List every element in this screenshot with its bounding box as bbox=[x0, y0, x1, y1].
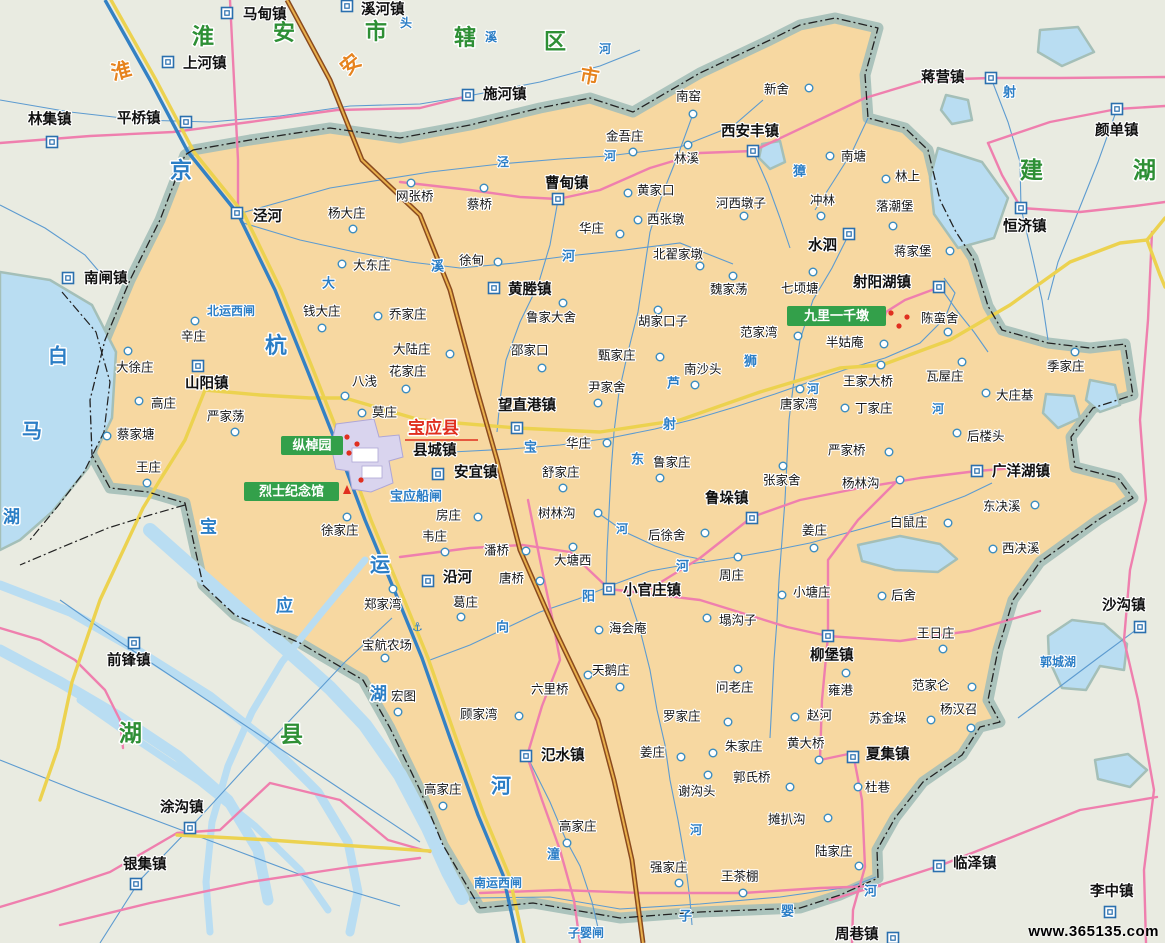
village-label: 蔡桥 bbox=[467, 197, 493, 211]
village-label: 潘桥 bbox=[484, 543, 510, 557]
village-label: 南窑 bbox=[676, 88, 701, 103]
water-label: 京 bbox=[170, 158, 192, 183]
water-label: 河 bbox=[615, 521, 628, 536]
village-symbol bbox=[569, 543, 577, 551]
village-label: 谢沟头 bbox=[678, 783, 716, 798]
village-symbol bbox=[394, 708, 402, 716]
town-symbol bbox=[1016, 203, 1027, 214]
village-label: 冲林 bbox=[810, 192, 836, 207]
village-label: 辛庄 bbox=[181, 328, 206, 343]
region-label: 湖 bbox=[1133, 157, 1156, 183]
village-symbol bbox=[689, 110, 697, 118]
village-label: 陈蛮舍 bbox=[921, 310, 959, 325]
town-label: 李中镇 bbox=[1089, 882, 1134, 900]
village-symbol bbox=[480, 184, 488, 192]
village-symbol bbox=[794, 332, 802, 340]
town-symbol bbox=[604, 584, 615, 595]
town-symbol bbox=[131, 879, 142, 890]
village-symbol bbox=[374, 312, 382, 320]
village-label: 东决溪 bbox=[983, 499, 1021, 513]
village-label: 张家舍 bbox=[763, 472, 801, 487]
village-label: 苏金垛 bbox=[869, 710, 907, 725]
village-symbol bbox=[946, 247, 954, 255]
village-symbol bbox=[603, 439, 611, 447]
village-label: 徐家庄 bbox=[321, 522, 359, 537]
town-label: 夏集镇 bbox=[866, 745, 910, 763]
village-symbol bbox=[724, 718, 732, 726]
village-label: 高家庄 bbox=[559, 818, 597, 833]
village-label: 后舍 bbox=[891, 587, 917, 602]
village-symbol bbox=[407, 179, 415, 187]
village-label: 半姑庵 bbox=[826, 334, 864, 349]
village-symbol bbox=[791, 713, 799, 721]
town-symbol bbox=[342, 1, 353, 12]
village-label: 落潮堡 bbox=[876, 198, 914, 213]
village-symbol bbox=[338, 260, 346, 268]
village-symbol bbox=[402, 385, 410, 393]
village-label: 韦庄 bbox=[422, 528, 447, 543]
village-label: 林上 bbox=[895, 169, 920, 183]
town-label: 上河镇 bbox=[183, 54, 227, 72]
town-label: 望直港镇 bbox=[498, 396, 556, 414]
town-symbol bbox=[888, 933, 899, 943]
village-label: 唐桥 bbox=[499, 570, 525, 585]
water-label: 河 bbox=[864, 883, 877, 898]
village-label: 陆家庄 bbox=[815, 843, 853, 858]
village-symbol bbox=[734, 665, 742, 673]
village-label: 徐甸 bbox=[459, 252, 484, 267]
village-label: 摊扒沟 bbox=[768, 812, 806, 826]
town-symbol bbox=[748, 146, 759, 157]
water-label: 溪 bbox=[431, 258, 445, 273]
water-label: 河 bbox=[603, 148, 616, 163]
village-label: 大陆庄 bbox=[393, 341, 431, 356]
village-symbol bbox=[796, 385, 804, 393]
village-symbol bbox=[381, 654, 389, 662]
watermark: www.365135.com bbox=[1028, 923, 1159, 940]
town-symbol bbox=[512, 423, 523, 434]
water-label: 溪 bbox=[485, 29, 498, 44]
village-symbol bbox=[594, 509, 602, 517]
village-label: 大庄基 bbox=[996, 387, 1034, 402]
scenic-dot bbox=[904, 314, 909, 319]
water-label: 郭城湖 bbox=[1040, 654, 1076, 669]
town-symbol bbox=[463, 90, 474, 101]
village-symbol bbox=[563, 839, 571, 847]
water-label: 应 bbox=[276, 595, 293, 615]
water-label: 射 bbox=[1002, 84, 1016, 99]
town-label: 柳堡镇 bbox=[810, 646, 854, 664]
village-symbol bbox=[882, 175, 890, 183]
village-label: 朱家庄 bbox=[725, 738, 763, 753]
village-label: 周庄 bbox=[719, 567, 744, 582]
village-symbol bbox=[703, 614, 711, 622]
village-label: 河西墩子 bbox=[716, 196, 766, 210]
village-symbol bbox=[1071, 348, 1079, 356]
region-label: 县 bbox=[280, 721, 303, 747]
village-label: 房庄 bbox=[436, 507, 461, 522]
town-symbol bbox=[129, 638, 140, 649]
water-label: 獐 bbox=[792, 163, 806, 178]
water-label: 东 bbox=[631, 451, 644, 466]
town-label: 小官庄镇 bbox=[623, 581, 681, 599]
village-label: 舒家庄 bbox=[542, 464, 580, 479]
village-symbol bbox=[734, 553, 742, 561]
village-symbol bbox=[896, 476, 904, 484]
village-label: 钱大庄 bbox=[303, 303, 341, 318]
water-label: 北运西闸 bbox=[207, 303, 255, 318]
county-map: ⚓头溪河泾河獐射京杭运河白马湖宝应湖大溪河宝射东芦狮河河向阳河河潼河子婴河郭城湖… bbox=[0, 0, 1165, 943]
village-symbol bbox=[677, 753, 685, 761]
water-label: 河 bbox=[806, 381, 819, 396]
village-symbol bbox=[358, 409, 366, 417]
town-symbol bbox=[1112, 104, 1123, 115]
village-symbol bbox=[341, 392, 349, 400]
village-symbol bbox=[701, 529, 709, 537]
town-symbol bbox=[972, 466, 983, 477]
village-symbol bbox=[739, 889, 747, 897]
village-label: 魏家荡 bbox=[710, 281, 748, 296]
water-label: 河 bbox=[491, 774, 511, 797]
town-label: 山阳镇 bbox=[185, 374, 229, 392]
village-label: 南沙头 bbox=[684, 361, 722, 376]
village-label: 鲁家大舍 bbox=[526, 309, 577, 324]
village-label: 范家仑 bbox=[912, 677, 950, 692]
prefecture-label: 市 bbox=[578, 63, 601, 89]
scenic-label: 九里一千墩 bbox=[803, 308, 870, 323]
region-label: 辖 bbox=[454, 25, 476, 50]
village-symbol bbox=[696, 262, 704, 270]
village-symbol bbox=[691, 381, 699, 389]
water-label: 南运西闸 bbox=[474, 875, 522, 890]
village-symbol bbox=[231, 428, 239, 436]
water-label: 宝应船闸 bbox=[390, 488, 442, 503]
scenic-label: 烈士纪念馆 bbox=[259, 483, 324, 498]
region-label: 市 bbox=[365, 19, 387, 44]
town-label: 沙沟镇 bbox=[1102, 596, 1146, 614]
scenic-dot bbox=[344, 434, 349, 439]
map-svg: ⚓头溪河泾河獐射京杭运河白马湖宝应湖大溪河宝射东芦狮河河向阳河河潼河子婴河郭城湖… bbox=[0, 0, 1165, 943]
village-symbol bbox=[389, 585, 397, 593]
village-label: 甄家庄 bbox=[598, 347, 636, 362]
scenic-dot bbox=[346, 450, 351, 455]
water-label: 河 bbox=[598, 41, 611, 56]
town-symbol bbox=[423, 576, 434, 587]
village-label: 塌沟子 bbox=[719, 613, 757, 627]
village-symbol bbox=[522, 547, 530, 555]
village-label: 七顷塘 bbox=[781, 280, 819, 295]
town-symbol bbox=[1135, 622, 1146, 633]
water-label: 婴 bbox=[781, 903, 794, 918]
village-symbol bbox=[889, 222, 897, 230]
region-label: 湖 bbox=[119, 720, 142, 746]
village-label: 八浅 bbox=[352, 374, 377, 388]
village-symbol bbox=[654, 306, 662, 314]
water-label: 湖 bbox=[3, 507, 20, 526]
village-label: 网张桥 bbox=[396, 188, 434, 203]
urban-block bbox=[352, 448, 378, 462]
town-label: 溪河镇 bbox=[361, 0, 405, 18]
water-label: 射 bbox=[662, 416, 676, 431]
village-symbol bbox=[629, 148, 637, 156]
town-label: 射阳湖镇 bbox=[852, 273, 911, 291]
town-label: 鲁垛镇 bbox=[705, 489, 749, 507]
town-label: 氾水镇 bbox=[541, 746, 585, 764]
town-label: 恒济镇 bbox=[1003, 217, 1047, 235]
village-symbol bbox=[878, 592, 886, 600]
village-label: 六里桥 bbox=[531, 682, 569, 696]
village-symbol bbox=[989, 545, 997, 553]
village-symbol bbox=[103, 432, 111, 440]
village-label: 林溪 bbox=[674, 151, 700, 165]
village-label: 黄大桥 bbox=[787, 736, 825, 750]
town-label: 银集镇 bbox=[123, 855, 167, 873]
village-label: 海会庵 bbox=[609, 620, 647, 635]
village-symbol bbox=[967, 724, 975, 732]
town-label: 曹甸镇 bbox=[545, 174, 589, 192]
village-label: 严家荡 bbox=[207, 408, 245, 423]
village-symbol bbox=[515, 712, 523, 720]
village-label: 杨大庄 bbox=[328, 205, 366, 220]
village-symbol bbox=[349, 225, 357, 233]
village-label: 大塘西 bbox=[554, 552, 592, 567]
water-label: 湖 bbox=[370, 684, 387, 703]
town-symbol bbox=[986, 73, 997, 84]
urban-block bbox=[362, 466, 382, 478]
village-label: 西张墩 bbox=[647, 211, 685, 226]
town-symbol bbox=[163, 57, 174, 68]
village-label: 问老庄 bbox=[716, 679, 754, 694]
town-symbol bbox=[848, 752, 859, 763]
village-symbol bbox=[124, 347, 132, 355]
village-symbol bbox=[779, 462, 787, 470]
village-label: 郑家湾 bbox=[364, 596, 402, 611]
village-symbol bbox=[446, 350, 454, 358]
village-label: 顾家湾 bbox=[460, 706, 498, 721]
village-label: 大徐庄 bbox=[116, 359, 154, 374]
village-label: 后楼头 bbox=[967, 428, 1005, 443]
town-label: 泾河 bbox=[253, 207, 282, 225]
village-symbol bbox=[939, 645, 947, 653]
village-label: 大东庄 bbox=[353, 257, 391, 272]
town-label: 林集镇 bbox=[28, 110, 72, 128]
village-symbol bbox=[457, 613, 465, 621]
scenic-dot bbox=[888, 310, 893, 315]
town-symbol bbox=[63, 273, 74, 284]
water-label: 河 bbox=[931, 401, 944, 416]
village-symbol bbox=[439, 802, 447, 810]
town-label: 广洋湖镇 bbox=[992, 462, 1050, 480]
village-label: 唐家湾 bbox=[780, 396, 818, 411]
town-label: 黄塍镇 bbox=[508, 280, 552, 298]
village-label: 新舍 bbox=[764, 81, 790, 96]
town-label: 马甸镇 bbox=[243, 5, 287, 23]
village-symbol bbox=[559, 484, 567, 492]
town-symbol bbox=[222, 8, 233, 19]
village-symbol bbox=[826, 152, 834, 160]
village-label: 杨林沟 bbox=[842, 475, 880, 490]
water-label: 河 bbox=[689, 822, 702, 837]
village-label: 雍港 bbox=[828, 682, 854, 697]
village-label: 丁家庄 bbox=[855, 400, 893, 415]
village-label: 白鼠庄 bbox=[890, 514, 928, 529]
village-label: 南塘 bbox=[841, 148, 866, 163]
town-label: 安宜镇 bbox=[454, 463, 498, 481]
village-symbol bbox=[1031, 501, 1039, 509]
village-label: 郭氏桥 bbox=[733, 769, 771, 784]
village-symbol bbox=[953, 429, 961, 437]
town-symbol bbox=[823, 631, 834, 642]
village-symbol bbox=[968, 683, 976, 691]
village-symbol bbox=[684, 141, 692, 149]
village-label: 强家庄 bbox=[650, 859, 688, 874]
town-symbol bbox=[934, 861, 945, 872]
town-label: 县城镇 bbox=[413, 441, 457, 459]
village-symbol bbox=[494, 258, 502, 266]
village-symbol bbox=[740, 212, 748, 220]
town-label: 前锋镇 bbox=[107, 651, 151, 669]
village-symbol bbox=[877, 361, 885, 369]
village-symbol bbox=[656, 474, 664, 482]
village-symbol bbox=[824, 814, 832, 822]
town-label: 南闸镇 bbox=[84, 269, 128, 287]
village-label: 蔡家塘 bbox=[117, 426, 155, 441]
water-label: 马 bbox=[22, 420, 42, 442]
village-symbol bbox=[809, 268, 817, 276]
village-label: 小塘庄 bbox=[793, 584, 831, 599]
village-label: 金吾庄 bbox=[606, 128, 644, 143]
region-label: 安 bbox=[273, 20, 295, 45]
village-symbol bbox=[704, 771, 712, 779]
village-label: 树林沟 bbox=[538, 505, 576, 520]
village-label: 高庄 bbox=[151, 395, 176, 410]
water-label: 阳 bbox=[582, 588, 595, 603]
region-label: 建 bbox=[1020, 157, 1043, 183]
village-label: 宝航农场 bbox=[362, 637, 412, 652]
village-label: 北翟家墩 bbox=[653, 246, 704, 261]
water-label: 大 bbox=[322, 275, 335, 290]
town-symbol bbox=[1105, 907, 1116, 918]
town-symbol bbox=[553, 194, 564, 205]
scenic-dot bbox=[354, 441, 359, 446]
town-symbol bbox=[185, 823, 196, 834]
village-label: 尹家舍 bbox=[588, 379, 626, 394]
water-label: 子婴闸 bbox=[568, 925, 604, 940]
water-label: 狮 bbox=[743, 353, 757, 368]
water-label: 白 bbox=[48, 343, 68, 367]
village-symbol bbox=[595, 626, 603, 634]
village-symbol bbox=[944, 328, 952, 336]
town-label: 西安丰镇 bbox=[721, 122, 779, 140]
village-label: 乔家庄 bbox=[389, 306, 427, 321]
village-label: 华庄 bbox=[566, 435, 591, 450]
village-label: 高家庄 bbox=[424, 781, 462, 796]
village-label: 瓦屋庄 bbox=[926, 368, 964, 383]
water-label: 宝 bbox=[524, 439, 537, 454]
village-symbol bbox=[616, 683, 624, 691]
village-symbol bbox=[855, 862, 863, 870]
town-symbol bbox=[489, 283, 500, 294]
town-label: 周巷镇 bbox=[835, 925, 879, 943]
water-label: 杭 bbox=[265, 333, 287, 358]
village-label: 蒋家堡 bbox=[894, 243, 932, 258]
town-label: 沿河 bbox=[443, 568, 472, 586]
village-label: 宏图 bbox=[391, 688, 416, 703]
village-symbol bbox=[885, 448, 893, 456]
town-symbol bbox=[521, 751, 532, 762]
town-label: 蒋营镇 bbox=[921, 68, 965, 86]
scenic-dot bbox=[358, 477, 363, 482]
village-symbol bbox=[927, 716, 935, 724]
town-symbol bbox=[47, 137, 58, 148]
town-symbol bbox=[844, 229, 855, 240]
village-symbol bbox=[810, 544, 818, 552]
village-symbol bbox=[815, 756, 823, 764]
village-symbol bbox=[536, 577, 544, 585]
water-label: 潼 bbox=[547, 846, 560, 861]
water-label: 泾 bbox=[497, 155, 509, 169]
water-label: 宝 bbox=[200, 516, 217, 536]
village-label: 姜庄 bbox=[802, 522, 827, 537]
region-label: 区 bbox=[544, 29, 566, 54]
town-label: 施河镇 bbox=[483, 85, 527, 103]
town-label: 平桥镇 bbox=[117, 109, 161, 127]
village-label: 罗家庄 bbox=[663, 708, 701, 723]
village-symbol bbox=[982, 389, 990, 397]
village-label: 严家桥 bbox=[828, 442, 866, 457]
village-label: 胡家口子 bbox=[638, 313, 688, 328]
village-label: 鲁家庄 bbox=[653, 454, 691, 469]
village-label: 华庄 bbox=[579, 220, 604, 235]
village-symbol bbox=[634, 216, 642, 224]
water-label: 子 bbox=[679, 908, 692, 923]
village-label: 姜庄 bbox=[640, 744, 665, 759]
town-symbol bbox=[934, 282, 945, 293]
scenic-dot bbox=[896, 323, 901, 328]
village-label: 王家大桥 bbox=[843, 373, 894, 388]
village-symbol bbox=[842, 669, 850, 677]
village-label: 葛庄 bbox=[453, 594, 478, 609]
village-label: 后徐舍 bbox=[648, 527, 686, 542]
village-symbol bbox=[143, 479, 151, 487]
village-label: 天鹅庄 bbox=[592, 662, 630, 677]
village-symbol bbox=[841, 404, 849, 412]
village-label: 杨汉召 bbox=[940, 701, 978, 716]
village-symbol bbox=[441, 548, 449, 556]
village-symbol bbox=[624, 189, 632, 197]
town-symbol bbox=[433, 469, 444, 480]
water-label: 运 bbox=[370, 553, 390, 576]
region-label: 淮 bbox=[192, 24, 214, 49]
town-label: 颜单镇 bbox=[1095, 121, 1139, 139]
village-label: 杜巷 bbox=[865, 779, 891, 794]
village-symbol bbox=[318, 324, 326, 332]
village-symbol bbox=[675, 879, 683, 887]
village-symbol bbox=[958, 358, 966, 366]
village-symbol bbox=[559, 299, 567, 307]
town-label: 水泗 bbox=[808, 236, 837, 254]
village-symbol bbox=[729, 272, 737, 280]
town-symbol bbox=[747, 513, 758, 524]
water-label: 河 bbox=[562, 248, 575, 263]
village-symbol bbox=[616, 230, 624, 238]
village-symbol bbox=[343, 513, 351, 521]
village-label: 花家庄 bbox=[389, 363, 427, 378]
village-label: 王日庄 bbox=[917, 625, 955, 640]
village-symbol bbox=[594, 399, 602, 407]
village-symbol bbox=[191, 317, 199, 325]
scenic-label: 纵棹园 bbox=[292, 437, 331, 452]
